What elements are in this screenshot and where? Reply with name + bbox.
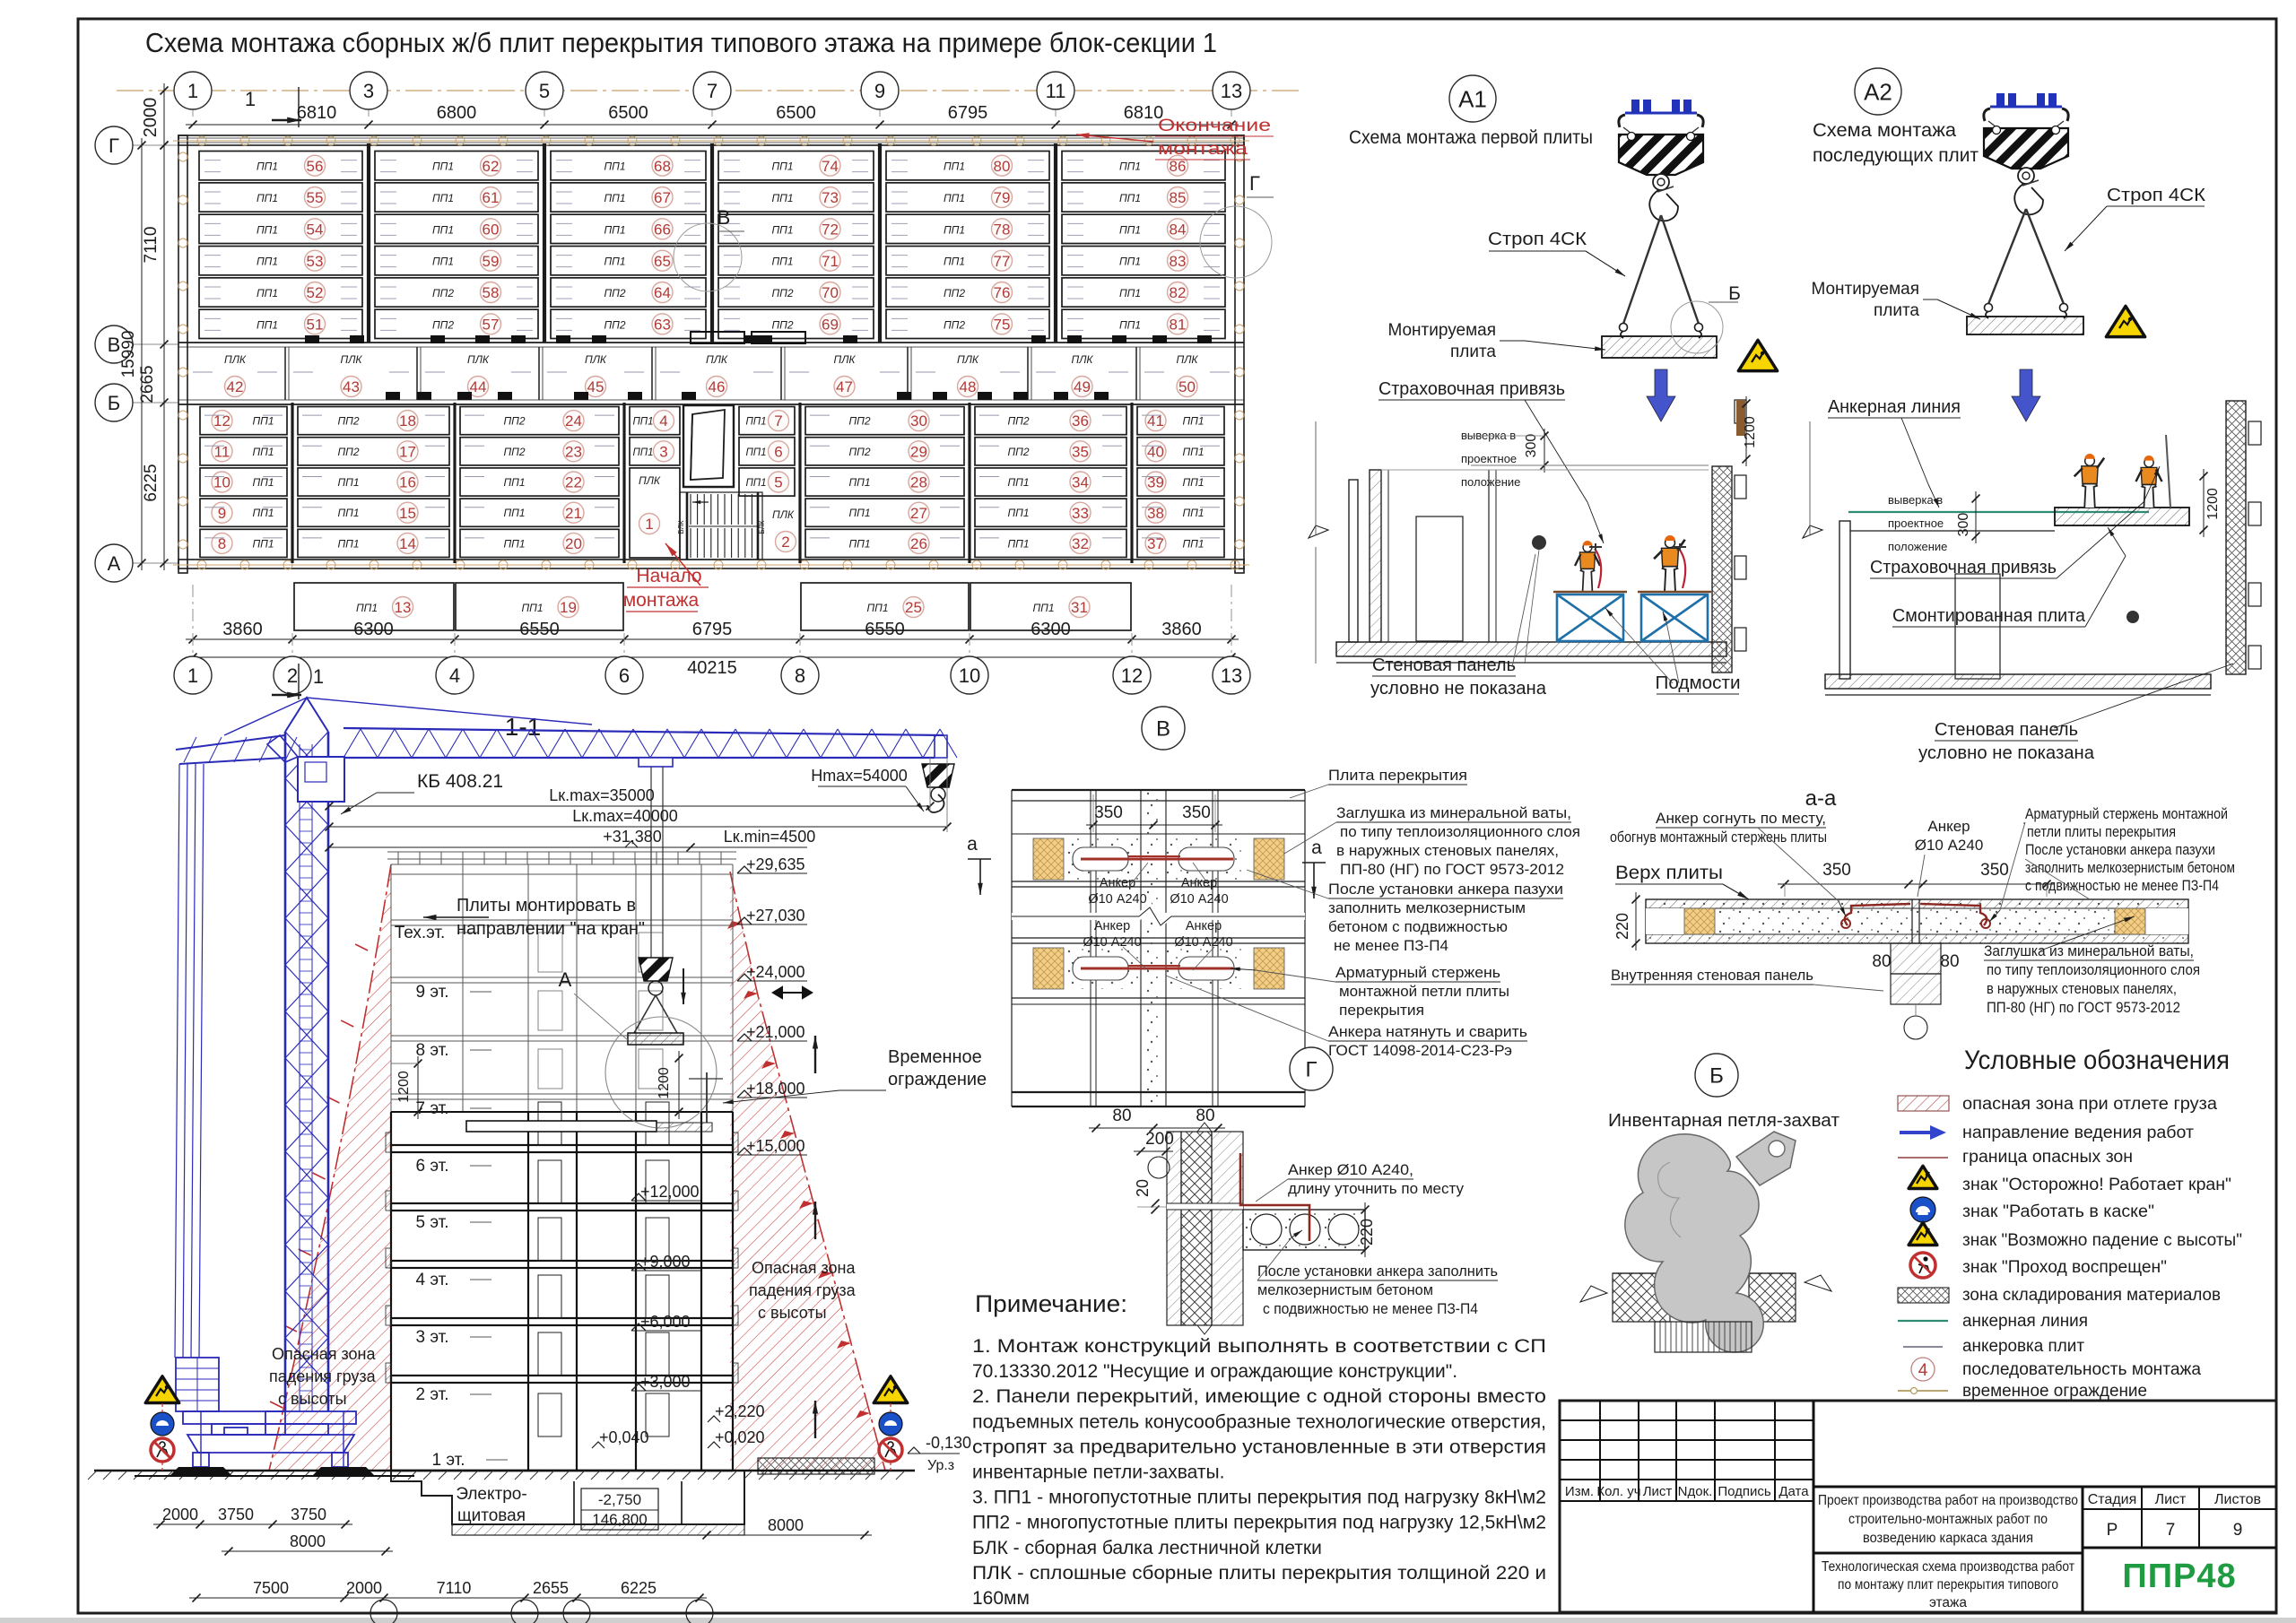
svg-text:70: 70 [822,284,839,301]
svg-text:Lк.min=4500: Lк.min=4500 [724,828,815,846]
svg-text:80: 80 [994,158,1011,175]
svg-text:выверка в: выверка в [1888,493,1943,507]
svg-text:1: 1 [245,88,256,110]
svg-text:27: 27 [910,505,927,522]
svg-text:А: А [559,968,572,991]
svg-text:ПЛК: ПЛК [1072,353,1094,366]
svg-text:ПП1: ПП1 [1119,161,1141,173]
svg-text:1: 1 [187,80,198,102]
svg-text:В: В [717,206,731,229]
svg-text:по типу теплоизоляционного сло: по типу теплоизоляционного слоя [1987,961,2200,978]
svg-text:42: 42 [227,378,244,395]
svg-text:Подмости: Подмости [1656,673,1741,693]
svg-text:5: 5 [774,474,782,491]
svg-text:53: 53 [307,253,324,270]
svg-text:2655: 2655 [533,1579,569,1597]
svg-text:Стадия: Стадия [2088,1492,2137,1507]
svg-text:67: 67 [654,189,671,206]
svg-text:19: 19 [560,599,577,616]
svg-text:8: 8 [795,664,805,687]
svg-text:не менее ПЗ-П4: не менее ПЗ-П4 [1334,937,1448,954]
svg-text:36: 36 [1072,412,1089,430]
svg-text:Схема монтажа: Схема монтажа [1813,120,1956,141]
svg-text:обогнув монтажный стержень пли: обогнув монтажный стержень плиты [1610,829,1827,846]
svg-text:ПП1: ПП1 [356,602,378,614]
svg-text:68: 68 [654,158,671,175]
svg-text:ПП2: ПП2 [771,318,793,331]
svg-text:Анкер: Анкер [1100,876,1135,890]
svg-text:48: 48 [960,378,977,395]
svg-text:ПЛК: ПЛК [772,508,795,521]
svg-text:инвентарные петли-захваты.: инвентарные петли-захваты. [972,1462,1224,1483]
svg-text:БЛК: БЛК [677,520,685,534]
svg-text:ППР48: ППР48 [2122,1558,2236,1595]
svg-text:1: 1 [313,665,324,688]
svg-text:ПП1: ПП1 [944,256,965,268]
svg-text:Ур.з: Ур.з [927,1458,954,1473]
svg-text:2: 2 [781,534,789,551]
svg-text:Г: Г [109,135,119,157]
svg-text:1200: 1200 [2205,488,2221,520]
svg-text:6550: 6550 [519,620,560,639]
svg-text:9: 9 [2233,1521,2243,1540]
svg-text:51: 51 [307,316,324,333]
svg-text:72: 72 [822,221,839,238]
svg-text:45: 45 [587,378,604,395]
svg-text:с высоты: с высоты [278,1390,347,1408]
svg-text:ПП1: ПП1 [337,507,359,519]
svg-text:24: 24 [565,412,582,430]
svg-text:60: 60 [483,221,500,238]
svg-text:ПП1: ПП1 [944,223,965,236]
svg-text:ПП2: ПП2 [604,318,625,331]
svg-text:2000: 2000 [141,98,161,138]
svg-text:знак "Возможно падение с высот: знак "Возможно падение с высоты" [1962,1231,2242,1250]
svg-text:ПП1: ПП1 [257,192,278,204]
svg-text:15990: 15990 [119,331,138,378]
svg-text:В: В [1156,717,1170,742]
svg-text:5 эт.: 5 эт. [416,1213,449,1232]
svg-text:Анкер: Анкер [1181,876,1217,890]
svg-text:Опасная зона: Опасная зона [272,1345,376,1363]
svg-text:Стеновая панель: Стеновая панель [1372,655,1516,675]
svg-text:длину уточнить по месту: длину уточнить по месту [1288,1180,1464,1197]
svg-text:а: а [967,834,978,855]
svg-text:350: 350 [1822,861,1851,880]
svg-text:ПП1: ПП1 [848,507,870,519]
svg-text:заполнить мелкозернистым бетон: заполнить мелкозернистым бетоном [2025,859,2235,876]
svg-text:75: 75 [994,316,1011,333]
svg-text:ПП1: ПП1 [604,256,625,268]
svg-text:щитовая: щитовая [457,1506,526,1525]
svg-text:Плиты монтировать в: Плиты монтировать в [457,896,636,916]
svg-text:8 эт.: 8 эт. [416,1041,449,1060]
svg-text:70.13330.2012 "Несущие и ограж: 70.13330.2012 "Несущие и ограждающие кон… [972,1361,1457,1382]
svg-text:4: 4 [1918,1361,1928,1380]
svg-text:Б: Б [1728,283,1741,304]
svg-text:ПП1: ПП1 [252,415,274,428]
svg-text:1. Монтаж конструкций выпол: 1. Монтаж конструкций выполнять в соотве… [972,1336,1546,1357]
svg-text:80: 80 [1196,1107,1214,1125]
svg-text:ПЛК: ПЛК [1177,353,1199,366]
svg-text:ПП1: ПП1 [1182,476,1204,489]
svg-text:20: 20 [1134,1179,1152,1197]
svg-text:Nдок.: Nдок. [1678,1484,1713,1499]
svg-text:350: 350 [1980,861,2009,880]
svg-text:плита: плита [1874,301,1919,320]
svg-text:ПП1: ПП1 [745,417,766,428]
svg-text:ПП2 - многопустотные плиты пер: ПП2 - многопустотные плиты перекрытия по… [972,1513,1546,1533]
svg-text:61: 61 [483,189,500,206]
svg-text:направлении "на кран": направлении "на кран" [457,919,645,939]
svg-text:Лист: Лист [2155,1492,2187,1507]
svg-text:Окончание: Окончание [1158,117,1271,135]
svg-text:6225: 6225 [142,464,161,501]
svg-text:с подвижностью не менее ПЗ-П4: с подвижностью не менее ПЗ-П4 [2025,877,2219,894]
svg-text:ПП1: ПП1 [604,161,625,173]
svg-text:ПЛК - сплошные сборные плиты п: ПЛК - сплошные сборные плиты перекрытия … [972,1563,1546,1584]
svg-text:ПП1: ПП1 [257,223,278,236]
svg-text:6550: 6550 [865,620,905,639]
svg-text:3750: 3750 [218,1506,254,1523]
svg-text:34: 34 [1072,474,1089,491]
svg-text:84: 84 [1170,221,1187,238]
svg-text:ГОСТ 14098-2014-С23-Рэ: ГОСТ 14098-2014-С23-Рэ [1328,1042,1512,1059]
svg-text:ПП1: ПП1 [866,602,888,614]
svg-text:ПП1: ПП1 [1182,507,1204,519]
svg-text:66: 66 [654,221,671,238]
svg-text:59: 59 [483,253,500,270]
svg-text:Анкер: Анкер [1186,919,1222,933]
svg-text:77: 77 [994,253,1011,270]
svg-text:перекрытия: перекрытия [1339,1002,1424,1019]
svg-text:ПЛК: ПЛК [585,353,607,366]
svg-text:ПП1: ПП1 [771,161,793,173]
svg-text:14: 14 [399,535,416,552]
svg-text:6300: 6300 [1031,620,1071,639]
svg-text:1200: 1200 [1743,416,1758,448]
svg-text:2000: 2000 [162,1506,198,1523]
svg-text:2 эт.: 2 эт. [416,1385,449,1404]
svg-text:ПП1: ПП1 [1007,476,1029,489]
svg-text:3860: 3860 [1161,620,1202,639]
svg-text:3: 3 [363,80,374,102]
svg-text:Изм.: Изм. [1565,1484,1594,1499]
svg-text:+29,635: +29,635 [746,855,805,873]
svg-text:ПП1: ПП1 [771,256,793,268]
svg-text:БЛК - сборная балка лестничной: БЛК - сборная балка лестничной клетки [972,1538,1322,1558]
svg-text:64: 64 [654,284,671,301]
svg-text:Б: Б [108,392,120,414]
svg-text:4: 4 [659,412,667,430]
svg-text:КБ 408.21: КБ 408.21 [417,771,503,792]
svg-text:-2,750: -2,750 [598,1491,641,1508]
svg-text:Заглушка из минеральной ваты,: Заглушка из минеральной ваты, [1984,942,2194,959]
svg-text:ПП2: ПП2 [1007,446,1029,458]
svg-text:ПП2: ПП2 [503,446,525,458]
svg-text:+9,000: +9,000 [640,1253,691,1271]
svg-text:ПП1: ПП1 [1119,287,1141,299]
svg-text:ПП1: ПП1 [521,602,543,614]
svg-text:ПЛК: ПЛК [224,353,247,366]
svg-text:Hmax=54000: Hmax=54000 [811,767,908,785]
svg-text:6225: 6225 [621,1579,657,1597]
svg-text:Временное: Временное [888,1047,982,1067]
svg-text:23: 23 [565,443,582,460]
svg-text:строительно-монтажных работ по: строительно-монтажных работ по [1848,1512,2048,1527]
svg-text:Арматурный стержень монтажной: Арматурный стержень монтажной [2025,805,2228,822]
svg-text:Кол. уч: Кол. уч [1596,1484,1640,1499]
svg-text:1 эт.: 1 эт. [432,1451,465,1470]
svg-text:1: 1 [187,664,198,687]
svg-text:7500: 7500 [253,1579,289,1597]
svg-text:ПЛК: ПЛК [467,353,490,366]
svg-text:16: 16 [399,474,416,491]
svg-text:17: 17 [399,443,416,460]
svg-text:А: А [108,552,121,575]
svg-text:с подвижностью не менее ПЗ-П4: с подвижностью не менее ПЗ-П4 [1263,1300,1478,1317]
svg-text:2: 2 [287,664,298,687]
svg-text:Ø10 А240: Ø10 А240 [1170,892,1228,907]
svg-text:1: 1 [645,516,653,533]
svg-text:65: 65 [654,253,671,270]
svg-text:Смонтированная плита: Смонтированная плита [1892,606,2086,626]
svg-text:ПП-80 (НГ) по ГОСТ 9573-2012: ПП-80 (НГ) по ГОСТ 9573-2012 [1340,861,1564,878]
svg-text:1200: 1200 [396,1071,412,1103]
svg-text:+12,000: +12,000 [640,1183,700,1201]
svg-text:80: 80 [1940,952,1959,971]
svg-text:проектное: проектное [1888,516,1944,530]
svg-text:а: а [1311,838,1322,858]
svg-text:4 эт.: 4 эт. [416,1271,449,1289]
svg-text:3750: 3750 [291,1506,326,1523]
svg-text:6 эт.: 6 эт. [416,1157,449,1176]
svg-text:Ø10 А240: Ø10 А240 [1088,892,1146,907]
svg-text:ПП1: ПП1 [944,192,965,204]
svg-text:22: 22 [565,474,582,491]
svg-text:ПП1: ПП1 [257,161,278,173]
svg-text:3 эт.: 3 эт. [416,1328,449,1347]
svg-text:ПП1: ПП1 [632,447,653,458]
svg-text:71: 71 [822,253,839,270]
svg-text:После установки анкера заполни: После установки анкера заполнить [1257,1263,1498,1280]
svg-text:ПП2: ПП2 [848,415,870,428]
svg-text:бетоном с подвижностью: бетоном с подвижностью [1328,918,1508,935]
svg-text:12: 12 [1121,664,1143,687]
svg-text:ПП1: ПП1 [1119,256,1141,268]
svg-text:ПП1: ПП1 [432,192,454,204]
svg-text:выверка в: выверка в [1461,429,1516,442]
svg-text:3. ПП1 - многопустотные плит: 3. ПП1 - многопустотные плиты перекрытия… [972,1488,1546,1508]
svg-text:ПП1: ПП1 [1182,415,1204,428]
svg-text:44: 44 [470,378,487,395]
svg-text:13: 13 [1221,80,1242,102]
svg-text:86: 86 [1170,158,1187,175]
svg-text:Верх плиты: Верх плиты [1615,863,1723,883]
svg-text:последовательность монтажа: последовательность монтажа [1962,1360,2201,1379]
svg-text:56: 56 [307,158,324,175]
svg-text:Lк.max=35000: Lк.max=35000 [549,786,654,804]
svg-text:85: 85 [1170,189,1187,206]
svg-text:55: 55 [307,189,324,206]
svg-text:ПП1: ПП1 [944,161,965,173]
svg-text:подъемных петель конусообраз: подъемных петель конусообразные технолог… [972,1411,1546,1432]
svg-text:20: 20 [565,535,582,552]
svg-text:21: 21 [565,505,582,522]
svg-text:ПП2: ПП2 [503,415,525,428]
svg-text:9 эт.: 9 эт. [416,983,449,1002]
svg-text:А1: А1 [1458,85,1487,112]
svg-text:ПЛК: ПЛК [639,474,661,487]
svg-text:Строп 4СК: Строп 4СК [2107,186,2205,205]
svg-text:2000: 2000 [346,1579,382,1597]
svg-text:Подпись: Подпись [1718,1484,1771,1499]
svg-text:Лист: Лист [1643,1484,1673,1499]
svg-text:30: 30 [910,412,927,430]
svg-text:Заглушка из минеральной ваты,: Заглушка из минеральной ваты, [1336,804,1571,821]
svg-text:ПП1: ПП1 [503,507,525,519]
svg-text:7110: 7110 [142,227,161,264]
svg-text:проектное: проектное [1461,452,1517,465]
svg-text:6800: 6800 [437,103,477,123]
svg-text:62: 62 [483,158,500,175]
svg-text:+2,220: +2,220 [715,1402,765,1420]
svg-text:Схема монтажа первой плиты: Схема монтажа первой плиты [1349,127,1593,148]
svg-text:ПП2: ПП2 [944,318,965,331]
svg-text:6795: 6795 [948,103,988,123]
svg-text:ПП1: ПП1 [771,192,793,204]
svg-text:стропят за предварительно у: стропят за предварительно установленные … [972,1436,1546,1457]
svg-text:Г: Г [1249,172,1260,195]
svg-text:69: 69 [822,316,839,333]
svg-text:2. Панели перекрытий, имеющ: 2. Панели перекрытий, имеющие с одной ст… [972,1386,1546,1407]
svg-text:58: 58 [483,284,500,301]
svg-text:Арматурный стержень: Арматурный стержень [1335,964,1500,981]
svg-text:ПП1: ПП1 [632,417,653,428]
svg-text:79: 79 [994,189,1011,206]
svg-text:БЛК: БЛК [758,520,766,534]
svg-text:300: 300 [1524,434,1539,458]
svg-text:28: 28 [910,474,927,491]
svg-text:8000: 8000 [290,1532,326,1550]
svg-text:33: 33 [1072,505,1089,522]
svg-text:ПП2: ПП2 [944,287,965,299]
svg-text:ПП1: ПП1 [252,446,274,458]
svg-text:ПП1: ПП1 [604,192,625,204]
svg-text:Стеновая панель: Стеновая панель [1935,720,2078,740]
svg-text:80: 80 [1872,952,1891,971]
svg-text:После установки анкера пазухи: После установки анкера пазухи [2025,841,2215,858]
svg-text:43: 43 [343,378,360,395]
svg-text:54: 54 [307,221,324,238]
svg-text:зона складирования материалов: зона складирования материалов [1962,1286,2221,1305]
svg-text:ПП1: ПП1 [503,476,525,489]
svg-text:ПП1: ПП1 [1007,507,1029,519]
svg-text:Анкер: Анкер [1927,818,1970,835]
svg-text:ПП1: ПП1 [1007,537,1029,550]
svg-text:83: 83 [1170,253,1187,270]
svg-text:4: 4 [449,664,460,687]
svg-text:8000: 8000 [768,1516,804,1534]
svg-text:Инвентарная петля-захват: Инвентарная петля-захват [1608,1111,1839,1131]
svg-text:анкерная линия: анкерная линия [1962,1312,2088,1331]
svg-text:32: 32 [1072,535,1089,552]
svg-text:49: 49 [1074,378,1091,395]
svg-text:ПП1: ПП1 [257,256,278,268]
svg-text:условно не показана: условно не показана [1918,743,2095,763]
svg-text:Технологическая схема производ: Технологическая схема производства работ [1822,1559,2074,1575]
svg-text:ПЛК: ПЛК [834,353,857,366]
svg-text:ПП1: ПП1 [848,537,870,550]
svg-text:74: 74 [822,158,839,175]
svg-text:возведению каркаса здания: возведению каркаса здания [1863,1531,2033,1546]
svg-text:15: 15 [399,505,416,522]
svg-text:ПП1: ПП1 [745,478,766,489]
svg-text:ограждение: ограждение [888,1070,987,1089]
svg-text:Монтируемая: Монтируемая [1387,321,1496,340]
svg-text:ПП1: ПП1 [848,476,870,489]
svg-text:Тех.эт.: Тех.эт. [395,924,446,942]
svg-text:+27,030: +27,030 [746,907,805,924]
svg-text:Анкер Ø10 А240,: Анкер Ø10 А240, [1288,1161,1413,1178]
svg-text:условно не показана: условно не показана [1370,679,1547,699]
svg-text:ПП1: ПП1 [432,256,454,268]
svg-text:последующих плит: последующих плит [1813,145,1979,166]
svg-text:Листов: Листов [2214,1492,2261,1507]
svg-text:300: 300 [1956,513,1971,537]
svg-text:Опасная зона: Опасная зона [752,1259,856,1277]
svg-text:2665: 2665 [138,365,157,403]
svg-text:6795: 6795 [692,620,733,639]
svg-text:7110: 7110 [437,1579,472,1597]
svg-text:Проект производства работ на п: Проект производства работ на производств… [1818,1493,2078,1508]
svg-text:26: 26 [910,535,927,552]
svg-text:57: 57 [483,316,500,333]
svg-text:Монтируемая: Монтируемая [1811,280,1919,299]
svg-text:73: 73 [822,189,839,206]
svg-text:мелкозернистым бетоном: мелкозернистым бетоном [1257,1281,1433,1298]
svg-text:ПП2: ПП2 [337,415,359,428]
svg-text:76: 76 [994,284,1011,301]
svg-text:положение: положение [1888,540,1947,553]
svg-text:временное ограждение: временное ограждение [1962,1382,2147,1401]
svg-text:220: 220 [1613,913,1631,940]
svg-text:63: 63 [654,316,671,333]
svg-text:146,800: 146,800 [592,1511,647,1528]
svg-text:ПП1: ПП1 [745,447,766,458]
svg-text:ПП2: ПП2 [771,287,793,299]
svg-text:31: 31 [1071,599,1088,616]
svg-text:ПП1: ПП1 [1032,602,1054,614]
svg-text:6500: 6500 [776,103,816,123]
svg-text:52: 52 [307,284,324,301]
svg-text:Плита перекрытия: Плита перекрытия [1328,767,1467,784]
svg-text:7: 7 [774,412,782,430]
svg-text:Анкер: Анкер [1094,919,1130,933]
svg-text:ПП2: ПП2 [337,446,359,458]
svg-text:монтажной петли плиты: монтажной петли плиты [1339,983,1509,1000]
svg-text:А2: А2 [1864,78,1892,105]
svg-text:35: 35 [1072,443,1089,460]
svg-text:80: 80 [1112,1107,1131,1125]
svg-text:25: 25 [905,599,922,616]
svg-text:Г: Г [1306,1058,1318,1082]
svg-text:ПП-80 (НГ) по ГОСТ 9573-2012: ПП-80 (НГ) по ГОСТ 9573-2012 [1987,999,2180,1016]
svg-text:ПП1: ПП1 [1119,318,1141,331]
svg-text:Страховочная привязь: Страховочная привязь [1870,558,2057,577]
svg-text:+21,000: +21,000 [746,1023,805,1041]
svg-text:9: 9 [874,80,885,102]
